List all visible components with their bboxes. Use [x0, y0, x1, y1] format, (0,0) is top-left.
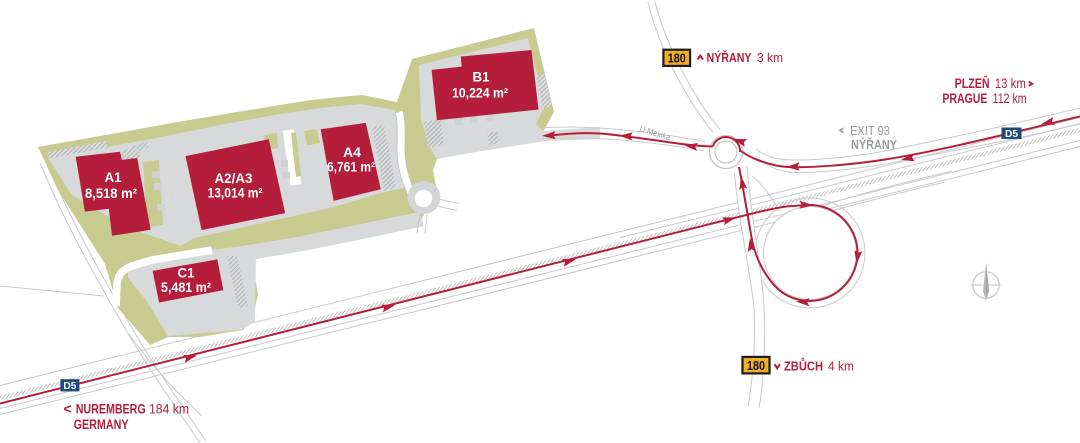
svg-text:NÝŘANY: NÝŘANY [851, 137, 898, 152]
svg-text:A4: A4 [343, 145, 362, 160]
svg-text:10,224 m²: 10,224 m² [452, 86, 508, 101]
svg-text:D5: D5 [63, 380, 76, 392]
svg-text:NUREMBERG: NUREMBERG [76, 402, 146, 417]
svg-text:C1: C1 [178, 266, 195, 281]
svg-text:8,518 m²: 8,518 m² [85, 186, 137, 201]
svg-text:D5: D5 [1005, 128, 1018, 140]
svg-text:A2/A3: A2/A3 [215, 171, 253, 186]
svg-text:180: 180 [668, 52, 686, 66]
svg-text:180: 180 [747, 359, 765, 373]
svg-text:EXIT 93: EXIT 93 [850, 124, 890, 138]
svg-text:6,761 m²: 6,761 m² [327, 160, 375, 175]
svg-text:PRAGUE: PRAGUE [942, 91, 987, 106]
svg-text:A1: A1 [105, 170, 122, 185]
svg-text:PLZEŇ: PLZEŇ [955, 76, 990, 91]
svg-text:ZBŮCH: ZBŮCH [784, 357, 823, 373]
svg-text:4 km: 4 km [828, 358, 854, 373]
svg-text:<: < [64, 401, 72, 417]
svg-text:NÝŘANY: NÝŘANY [707, 50, 752, 65]
svg-text:184 km: 184 km [149, 402, 189, 417]
svg-text:5,481 m²: 5,481 m² [161, 280, 211, 295]
svg-text:13 km: 13 km [995, 76, 1026, 91]
svg-text:112 km: 112 km [993, 91, 1027, 106]
svg-text:GERMANY: GERMANY [74, 417, 129, 432]
svg-text:B1: B1 [473, 70, 490, 85]
svg-text:3 km: 3 km [757, 50, 783, 65]
svg-text:13,014 m²: 13,014 m² [208, 186, 263, 201]
